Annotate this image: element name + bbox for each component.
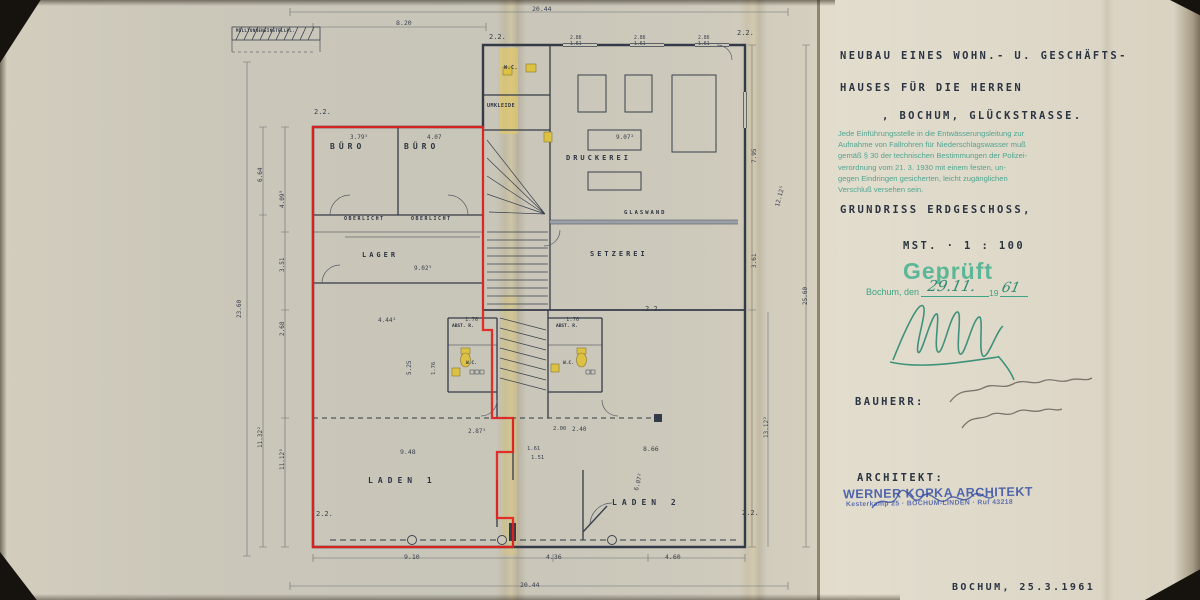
architect-signature <box>872 490 994 508</box>
photo-edge-left <box>0 0 7 600</box>
photo-edge-bottom <box>0 594 900 600</box>
approval-signature <box>890 306 1014 380</box>
signatures-layer <box>0 0 1200 600</box>
scanned-floor-plan-photo: BÜROBÜROOBERLICHTOBERLICHTLAGERW.C.UMKLE… <box>0 0 1200 600</box>
photo-edge-top <box>0 0 835 6</box>
client-signature <box>950 378 1092 428</box>
photo-edge-right <box>1174 0 1200 600</box>
